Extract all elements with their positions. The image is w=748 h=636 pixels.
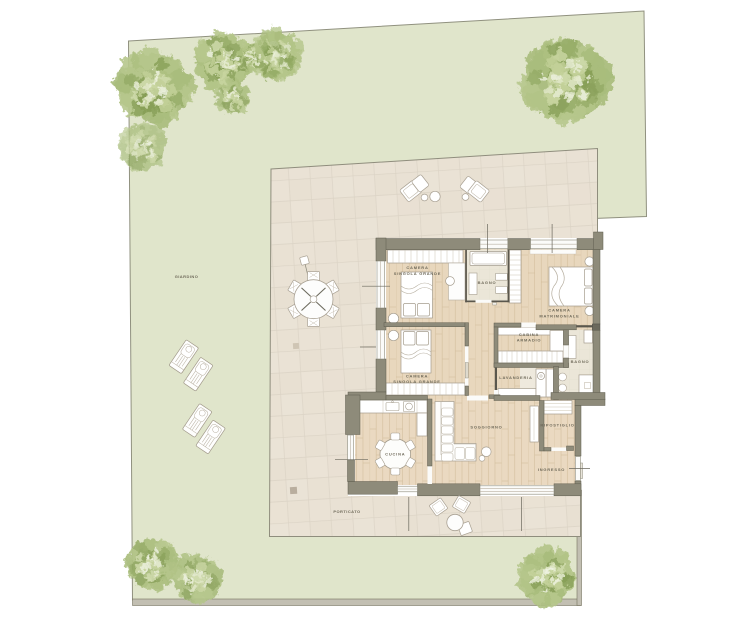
svg-text:CAMERA: CAMERA — [548, 308, 570, 313]
svg-text:PORTICATO: PORTICATO — [333, 509, 360, 514]
svg-text:MATRIMONIALE: MATRIMONIALE — [539, 313, 579, 318]
svg-text:CABINA: CABINA — [519, 332, 539, 337]
svg-text:CUCINA: CUCINA — [385, 452, 405, 457]
svg-text:BAGNO: BAGNO — [571, 359, 590, 364]
svg-text:GIARDINO: GIARDINO — [175, 274, 199, 279]
svg-text:CAMERA: CAMERA — [406, 373, 428, 378]
svg-text:ARMADIO: ARMADIO — [517, 338, 542, 343]
svg-text:CAMERA: CAMERA — [406, 265, 428, 270]
svg-text:SOGGIORNO: SOGGIORNO — [470, 425, 502, 430]
svg-text:SINGOLA GRANDE: SINGOLA GRANDE — [393, 379, 440, 384]
svg-text:LAVANDERIA: LAVANDERIA — [499, 375, 532, 380]
svg-text:SINGOLA GRANDE: SINGOLA GRANDE — [394, 271, 441, 276]
svg-text:RIPOSTIGLIO: RIPOSTIGLIO — [540, 423, 574, 428]
svg-text:BAGNO: BAGNO — [478, 280, 497, 285]
svg-text:INGRESSO: INGRESSO — [538, 467, 565, 472]
